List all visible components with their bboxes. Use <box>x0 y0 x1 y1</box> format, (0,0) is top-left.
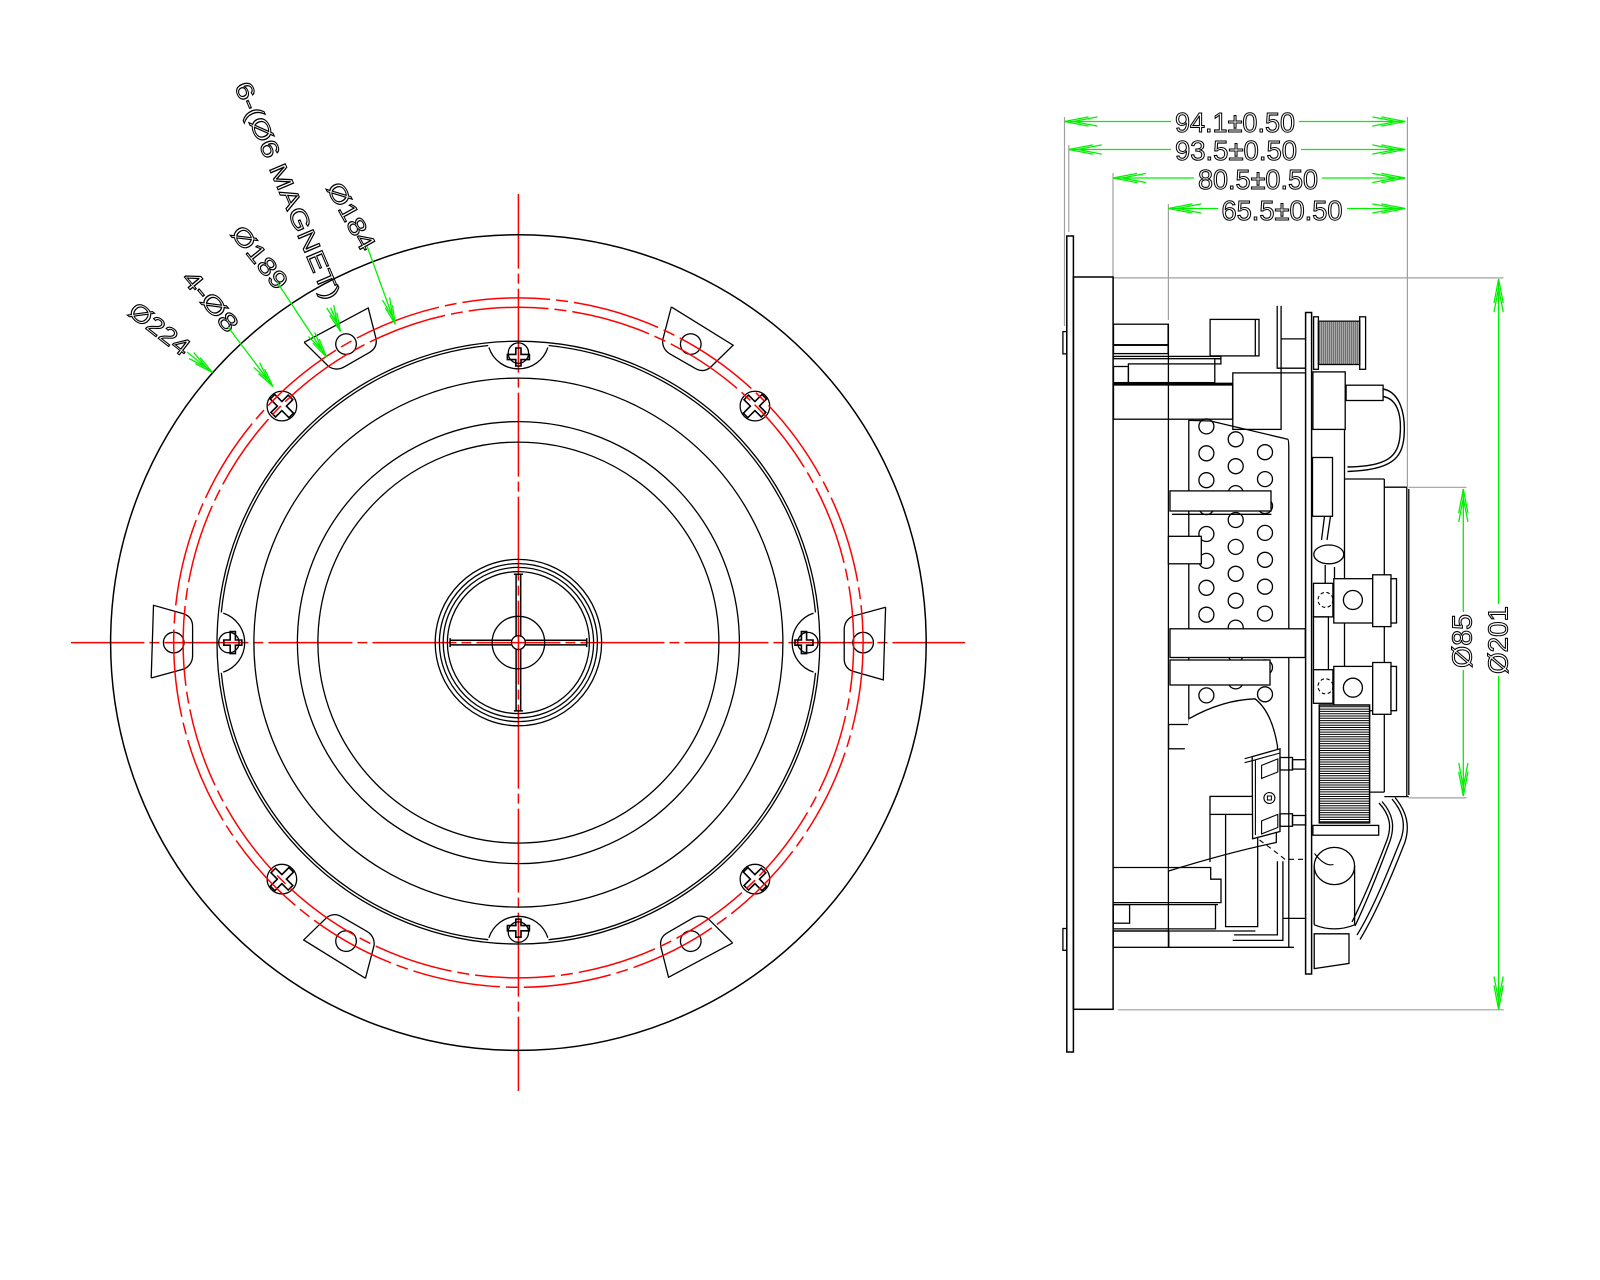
svg-text:Ø85: Ø85 <box>1447 614 1478 668</box>
svg-text:Ø201: Ø201 <box>1483 606 1514 674</box>
svg-text:93.5±0.50: 93.5±0.50 <box>1175 135 1297 166</box>
svg-text:94.1±0.50: 94.1±0.50 <box>1175 107 1295 138</box>
svg-text:80.5±0.50: 80.5±0.50 <box>1198 164 1318 195</box>
svg-text:65.5±0.50: 65.5±0.50 <box>1222 195 1343 226</box>
